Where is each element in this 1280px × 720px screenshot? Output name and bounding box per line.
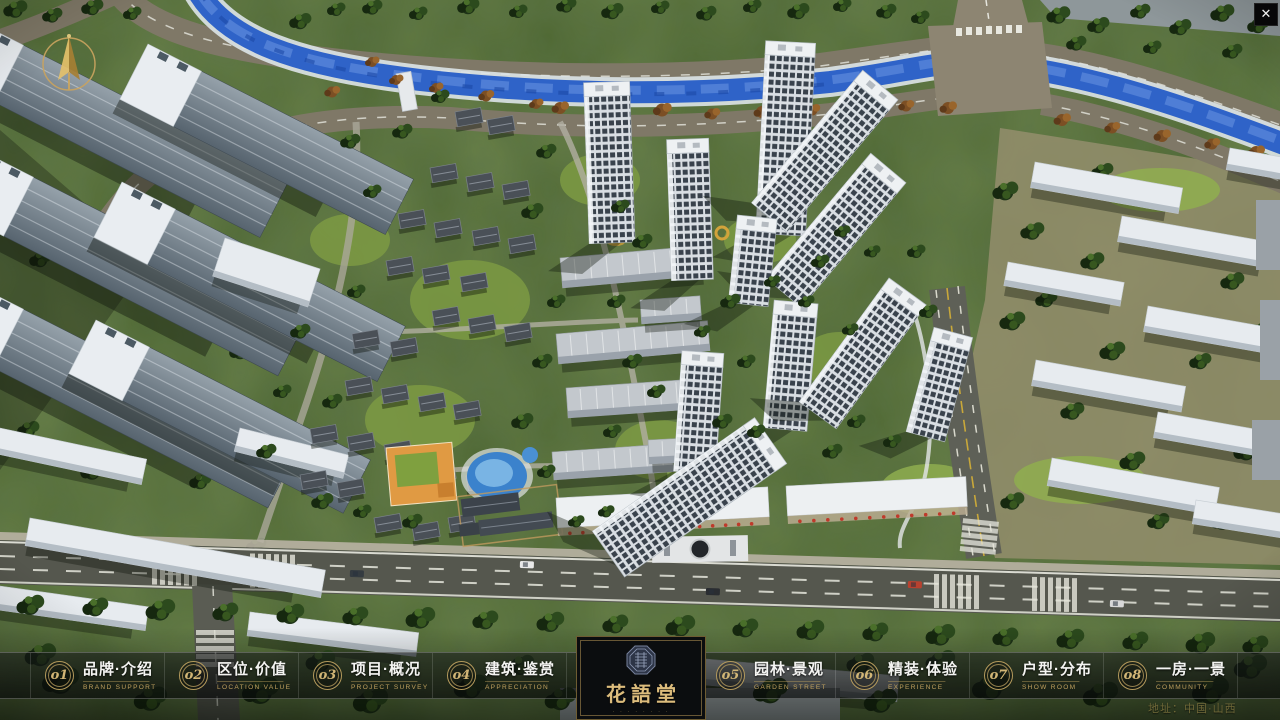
nav-item-decoration-experience[interactable]: o6 精装·体验 EXPERIENCE <box>835 653 969 698</box>
nav-label-en: GARDEN STREET <box>754 681 820 691</box>
logo-title: 花語堂 <box>577 678 705 707</box>
nav-item-project-survey[interactable]: o3 项目·概况 PROJECT SURVEY <box>298 653 432 698</box>
seal-emblem-icon <box>625 644 657 676</box>
sales-presentation-window: ✕ o1 品牌·介绍 BRAND SUPPORT o2 区位·价值 LOCATI… <box>0 0 1280 720</box>
nav-label-en: PROJECT SURVEY <box>351 681 417 691</box>
nav-label-en: SHOW ROOM <box>1022 681 1079 691</box>
nav-item-room-view[interactable]: o8 一房·一景 COMMUNITY <box>1103 653 1237 698</box>
masterplan-render <box>0 0 1280 720</box>
number-badge: o8 <box>1118 661 1147 690</box>
address-text: 地址：中国·山西 <box>1148 700 1237 716</box>
number-badge: o3 <box>313 661 342 690</box>
nav-label-en: LOCATION VALUE <box>217 681 283 691</box>
close-button[interactable]: ✕ <box>1254 3 1278 26</box>
nav-label-en: BRAND SUPPORT <box>83 681 149 691</box>
nav-label-zh: 项目·概况 <box>351 658 432 679</box>
nav-label-zh: 一房·一景 <box>1156 658 1226 679</box>
number-badge: o7 <box>984 661 1013 690</box>
logo-panel[interactable]: 花語堂 · · · · · · · · <box>576 636 706 720</box>
number-badge: o2 <box>179 661 208 690</box>
logo-subtitle: · · · · · · · · <box>596 708 686 714</box>
nav-label-en: COMMUNITY <box>1156 681 1213 691</box>
nav-label-zh: 园林·景观 <box>754 658 835 679</box>
nav-item-brand-intro[interactable]: o1 品牌·介绍 BRAND SUPPORT <box>30 653 164 698</box>
nav-label-zh: 户型·分布 <box>1022 658 1092 679</box>
nav-label-zh: 区位·价值 <box>217 658 298 679</box>
number-badge: o1 <box>45 661 74 690</box>
navbar-right-stub <box>1237 653 1280 698</box>
nav-item-garden-landscape[interactable]: o5 园林·景观 GARDEN STREET <box>701 653 835 698</box>
navbar-left-stub <box>0 653 30 698</box>
nav-item-architecture-appreciation[interactable]: o4 建筑·鉴赏 APPRECIATION <box>432 653 566 698</box>
nav-label-en: EXPERIENCE <box>888 681 945 691</box>
number-badge: o5 <box>716 661 745 690</box>
nav-label-zh: 建筑·鉴赏 <box>485 658 563 679</box>
number-badge: o6 <box>850 661 879 690</box>
nav-item-location-value[interactable]: o2 区位·价值 LOCATION VALUE <box>164 653 298 698</box>
number-badge: o4 <box>447 661 476 690</box>
nav-item-floorplan-distribution[interactable]: o7 户型·分布 SHOW ROOM <box>969 653 1103 698</box>
nav-label-en: APPRECIATION <box>485 681 549 691</box>
nav-label-zh: 品牌·介绍 <box>83 658 164 679</box>
nav-label-zh: 精装·体验 <box>888 658 958 679</box>
compass-icon <box>36 28 102 94</box>
